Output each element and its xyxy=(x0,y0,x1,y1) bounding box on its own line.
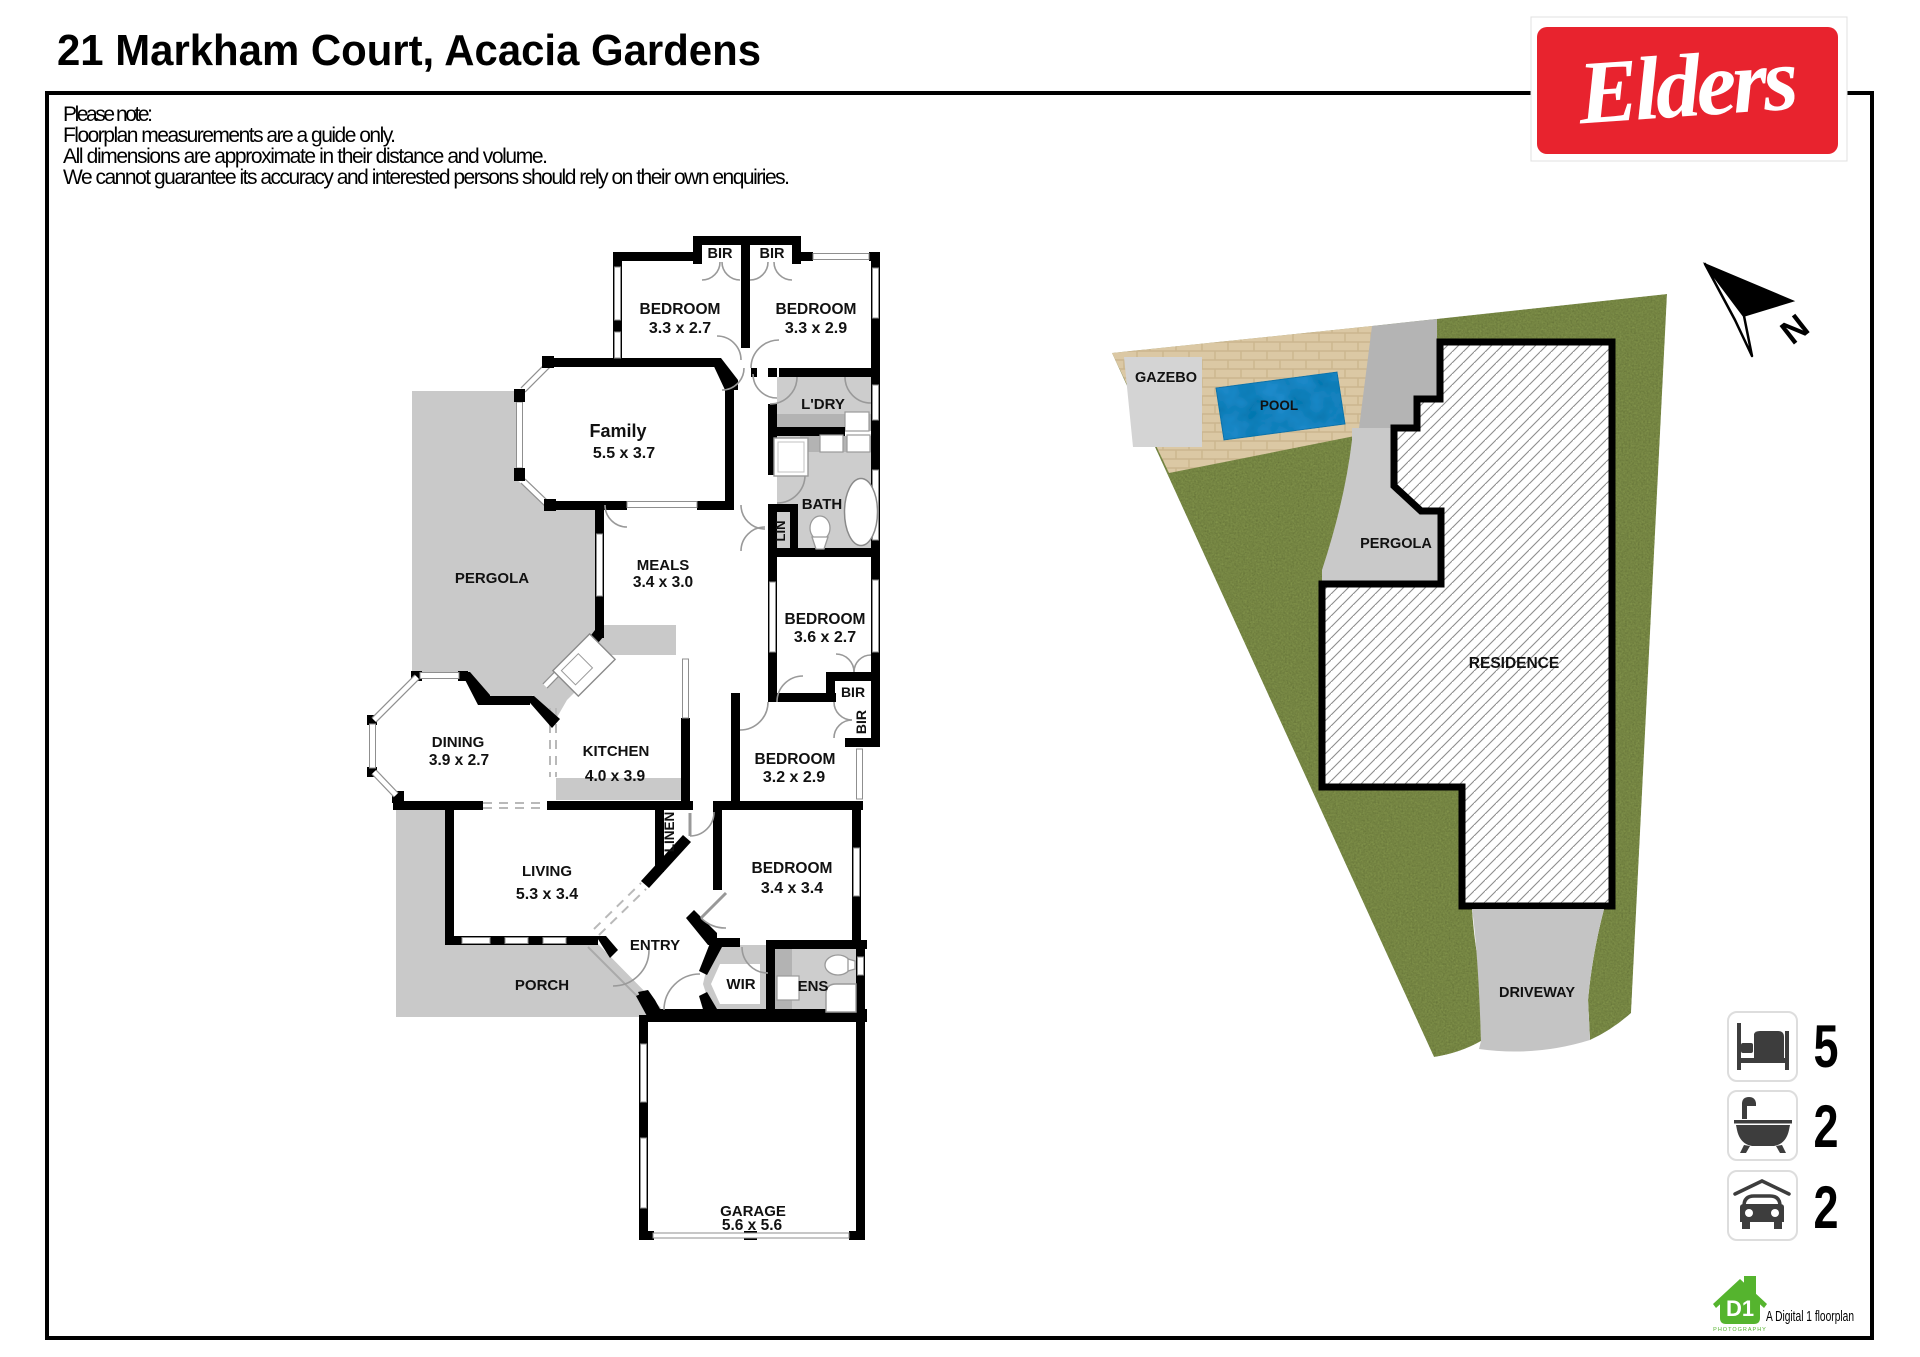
svg-text:4.0 x 3.9: 4.0 x 3.9 xyxy=(585,768,646,785)
svg-text:DINING: DINING xyxy=(432,734,485,751)
svg-text:PERGOLA: PERGOLA xyxy=(455,570,529,587)
svg-text:5: 5 xyxy=(1814,1013,1839,1080)
svg-text:BEDROOM: BEDROOM xyxy=(640,301,721,318)
svg-text:2: 2 xyxy=(1814,1174,1839,1241)
svg-text:3.6 x 2.7: 3.6 x 2.7 xyxy=(794,629,856,646)
svg-text:BIR: BIR xyxy=(853,710,869,734)
svg-text:Elders: Elders xyxy=(1574,29,1799,143)
svg-text:A Digital 1 floorplan: A Digital 1 floorplan xyxy=(1766,1309,1854,1325)
svg-text:KITCHEN: KITCHEN xyxy=(583,743,650,760)
svg-text:3.3 x 2.9: 3.3 x 2.9 xyxy=(785,320,847,337)
svg-text:We cannot guarantee its accura: We cannot guarantee its accuracy and int… xyxy=(63,166,790,189)
svg-text:Family: Family xyxy=(589,421,646,441)
svg-text:BIR: BIR xyxy=(841,684,865,700)
svg-text:5.6 x 5.6: 5.6 x 5.6 xyxy=(722,1217,783,1234)
svg-text:BEDROOM: BEDROOM xyxy=(776,301,857,318)
svg-text:PERGOLA: PERGOLA xyxy=(1360,536,1432,552)
svg-text:BIR: BIR xyxy=(708,246,734,262)
svg-text:BEDROOM: BEDROOM xyxy=(755,751,836,768)
svg-text:Please note:: Please note: xyxy=(63,103,153,126)
svg-text:3.9 x 2.7: 3.9 x 2.7 xyxy=(429,752,489,769)
svg-text:All dimensions are approximate: All dimensions are approximate in their … xyxy=(63,145,548,168)
svg-text:LIN: LIN xyxy=(773,521,788,542)
svg-text:MEALS: MEALS xyxy=(637,557,690,574)
svg-text:WIR: WIR xyxy=(726,976,755,993)
svg-text:3.4 x 3.0: 3.4 x 3.0 xyxy=(633,574,693,591)
svg-text:BEDROOM: BEDROOM xyxy=(752,860,833,877)
svg-text:21 Markham Court, Acacia Garde: 21 Markham Court, Acacia Gardens xyxy=(57,26,761,75)
svg-text:LIVING: LIVING xyxy=(522,863,572,880)
svg-text:BIR: BIR xyxy=(760,246,786,262)
svg-text:LINEN: LINEN xyxy=(662,812,677,853)
svg-text:PORCH: PORCH xyxy=(515,977,569,994)
svg-text:BATH: BATH xyxy=(802,496,843,513)
svg-text:BEDROOM: BEDROOM xyxy=(785,611,866,628)
svg-text:GAZEBO: GAZEBO xyxy=(1135,370,1197,386)
svg-text:DRIVEWAY: DRIVEWAY xyxy=(1499,985,1575,1001)
svg-text:L'DRY: L'DRY xyxy=(801,396,845,413)
svg-text:ENS: ENS xyxy=(798,978,829,995)
svg-text:3.2 x 2.9: 3.2 x 2.9 xyxy=(763,769,825,786)
svg-text:D1: D1 xyxy=(1726,1296,1754,1321)
svg-text:5.3 x 3.4: 5.3 x 3.4 xyxy=(516,886,578,903)
svg-text:PHOTOGRAPHY: PHOTOGRAPHY xyxy=(1713,1327,1767,1333)
svg-text:3.3 x 2.7: 3.3 x 2.7 xyxy=(649,320,711,337)
svg-text:3.4 x 3.4: 3.4 x 3.4 xyxy=(761,880,823,897)
svg-text:RESIDENCE: RESIDENCE xyxy=(1469,655,1559,672)
svg-text:2: 2 xyxy=(1814,1093,1839,1160)
svg-text:ENTRY: ENTRY xyxy=(630,937,680,954)
svg-text:POOL: POOL xyxy=(1260,398,1298,413)
svg-text:Floorplan measurements are a g: Floorplan measurements are a guide only. xyxy=(63,124,396,147)
svg-text:5.5 x 3.7: 5.5 x 3.7 xyxy=(593,445,655,462)
